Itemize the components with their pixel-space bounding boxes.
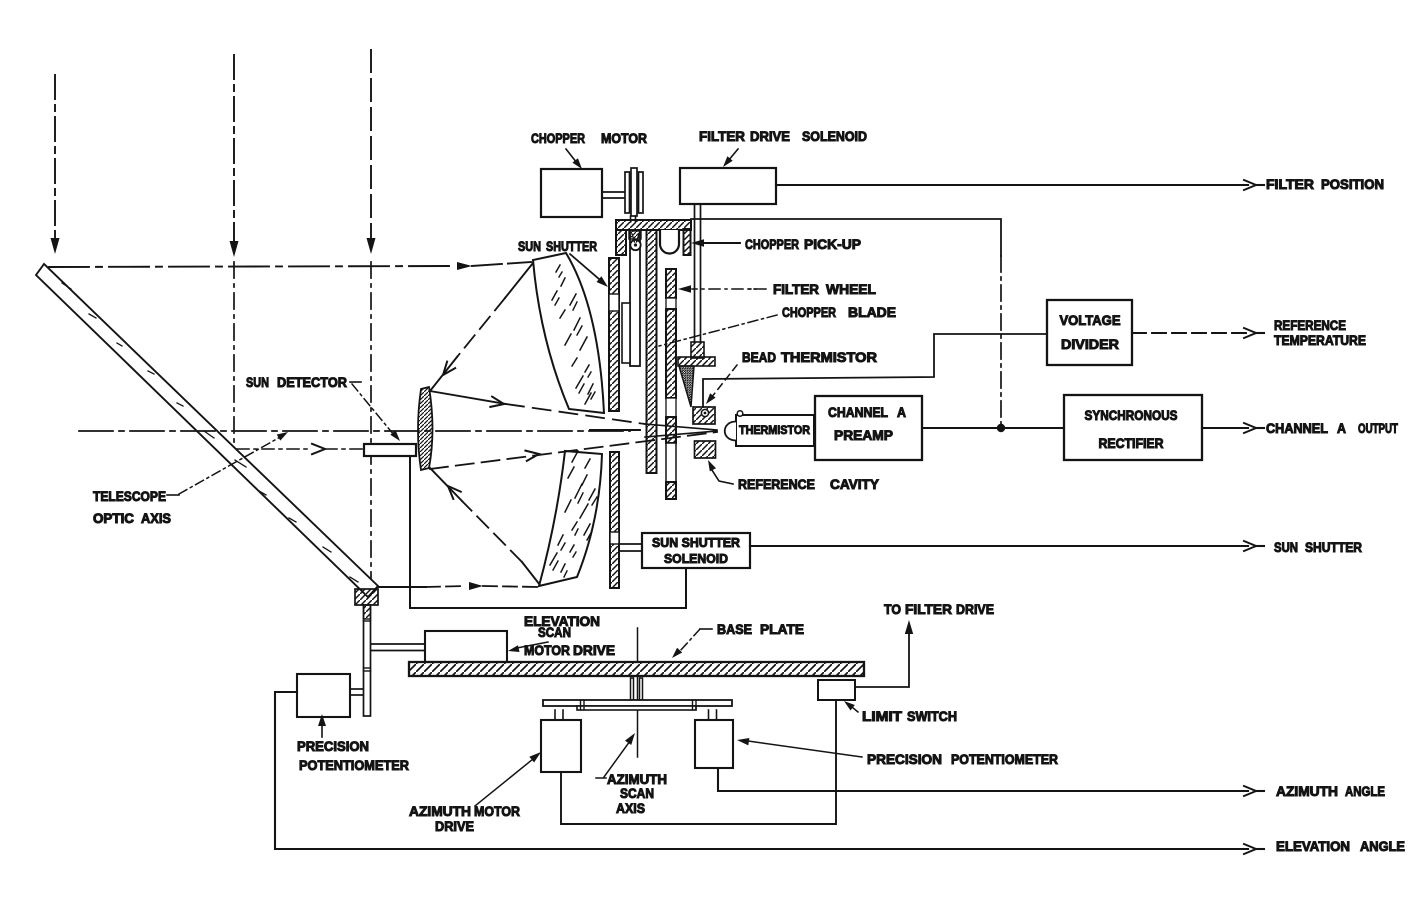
svg-text:PLATE: PLATE: [760, 622, 804, 637]
svg-text:CHOPPER: CHOPPER: [745, 237, 799, 252]
svg-text:CHANNEL: CHANNEL: [1266, 421, 1328, 436]
svg-text:DIVIDER: DIVIDER: [1061, 337, 1119, 352]
svg-text:ANGLE: ANGLE: [1360, 839, 1405, 854]
svg-text:ELEVATION: ELEVATION: [1276, 839, 1350, 854]
svg-text:SUN: SUN: [246, 375, 269, 390]
svg-text:AZIMUTH: AZIMUTH: [1276, 784, 1338, 799]
svg-text:DRIVE: DRIVE: [956, 602, 994, 617]
svg-text:DRIVE: DRIVE: [750, 129, 790, 144]
svg-text:A: A: [1337, 421, 1346, 436]
svg-text:LIMIT: LIMIT: [862, 709, 903, 724]
svg-text:SUN: SUN: [1274, 540, 1298, 555]
svg-text:REFERENCE: REFERENCE: [738, 477, 815, 492]
svg-text:VOLTAGE: VOLTAGE: [1060, 313, 1121, 328]
svg-text:CHOPPER: CHOPPER: [531, 131, 585, 146]
svg-text:POSITION: POSITION: [1321, 177, 1384, 192]
svg-text:RECTIFIER: RECTIFIER: [1099, 436, 1164, 451]
svg-text:SYNCHRONOUS: SYNCHRONOUS: [1085, 408, 1178, 423]
svg-text:FILTER: FILTER: [773, 282, 819, 297]
svg-text:THERMISTOR: THERMISTOR: [781, 350, 877, 365]
svg-text:PRECISION: PRECISION: [297, 739, 369, 754]
svg-text:SCAN: SCAN: [538, 625, 571, 640]
svg-text:FILTER: FILTER: [905, 602, 952, 617]
svg-text:OPTIC: OPTIC: [93, 511, 134, 526]
svg-text:AXIS: AXIS: [141, 511, 171, 526]
svg-text:CAVITY: CAVITY: [830, 477, 879, 492]
svg-text:MOTOR: MOTOR: [601, 131, 647, 146]
svg-text:BEAD: BEAD: [742, 350, 776, 365]
svg-text:TEMPERATURE: TEMPERATURE: [1274, 333, 1366, 348]
svg-text:SOLENOID: SOLENOID: [802, 129, 867, 144]
svg-text:OUTPUT: OUTPUT: [1358, 421, 1399, 436]
svg-text:SHUTTER: SHUTTER: [546, 239, 597, 254]
svg-text:TELESCOPE: TELESCOPE: [93, 489, 166, 504]
svg-text:POTENTIOMETER: POTENTIOMETER: [951, 752, 1058, 767]
svg-text:REFERENCE: REFERENCE: [1274, 318, 1346, 333]
svg-text:POTENTIOMETER: POTENTIOMETER: [299, 758, 409, 773]
svg-text:DETECTOR: DETECTOR: [277, 375, 347, 390]
svg-text:MOTOR: MOTOR: [474, 804, 520, 819]
svg-text:SOLENOID: SOLENOID: [664, 551, 728, 566]
svg-text:AXIS: AXIS: [616, 801, 645, 816]
svg-text:DRIVE: DRIVE: [435, 819, 474, 834]
svg-text:SUN SHUTTER: SUN SHUTTER: [652, 535, 741, 550]
svg-text:WHEEL: WHEEL: [826, 282, 876, 297]
svg-text:CHANNEL: CHANNEL: [828, 405, 888, 420]
svg-text:AZIMUTH: AZIMUTH: [409, 804, 471, 819]
svg-text:PREAMP: PREAMP: [834, 428, 893, 443]
svg-text:FILTER: FILTER: [1266, 177, 1314, 192]
svg-text:BLADE: BLADE: [848, 305, 896, 320]
svg-text:BASE: BASE: [717, 622, 752, 637]
svg-text:SWITCH: SWITCH: [907, 709, 957, 724]
svg-text:AZIMUTH: AZIMUTH: [607, 772, 667, 787]
svg-text:DRIVE: DRIVE: [573, 643, 615, 658]
svg-text:ANGLE: ANGLE: [1345, 784, 1385, 799]
svg-text:THERMISTOR: THERMISTOR: [739, 423, 810, 437]
svg-text:SUN: SUN: [518, 239, 541, 254]
svg-text:FILTER: FILTER: [699, 129, 745, 144]
svg-text:A: A: [897, 405, 906, 420]
svg-text:PRECISION: PRECISION: [867, 752, 942, 767]
svg-text:TO: TO: [884, 602, 901, 617]
svg-text:PICK-UP: PICK-UP: [804, 237, 861, 252]
svg-text:SCAN: SCAN: [620, 786, 654, 801]
svg-text:SHUTTER: SHUTTER: [1305, 540, 1362, 555]
svg-text:CHOPPER: CHOPPER: [782, 305, 836, 320]
